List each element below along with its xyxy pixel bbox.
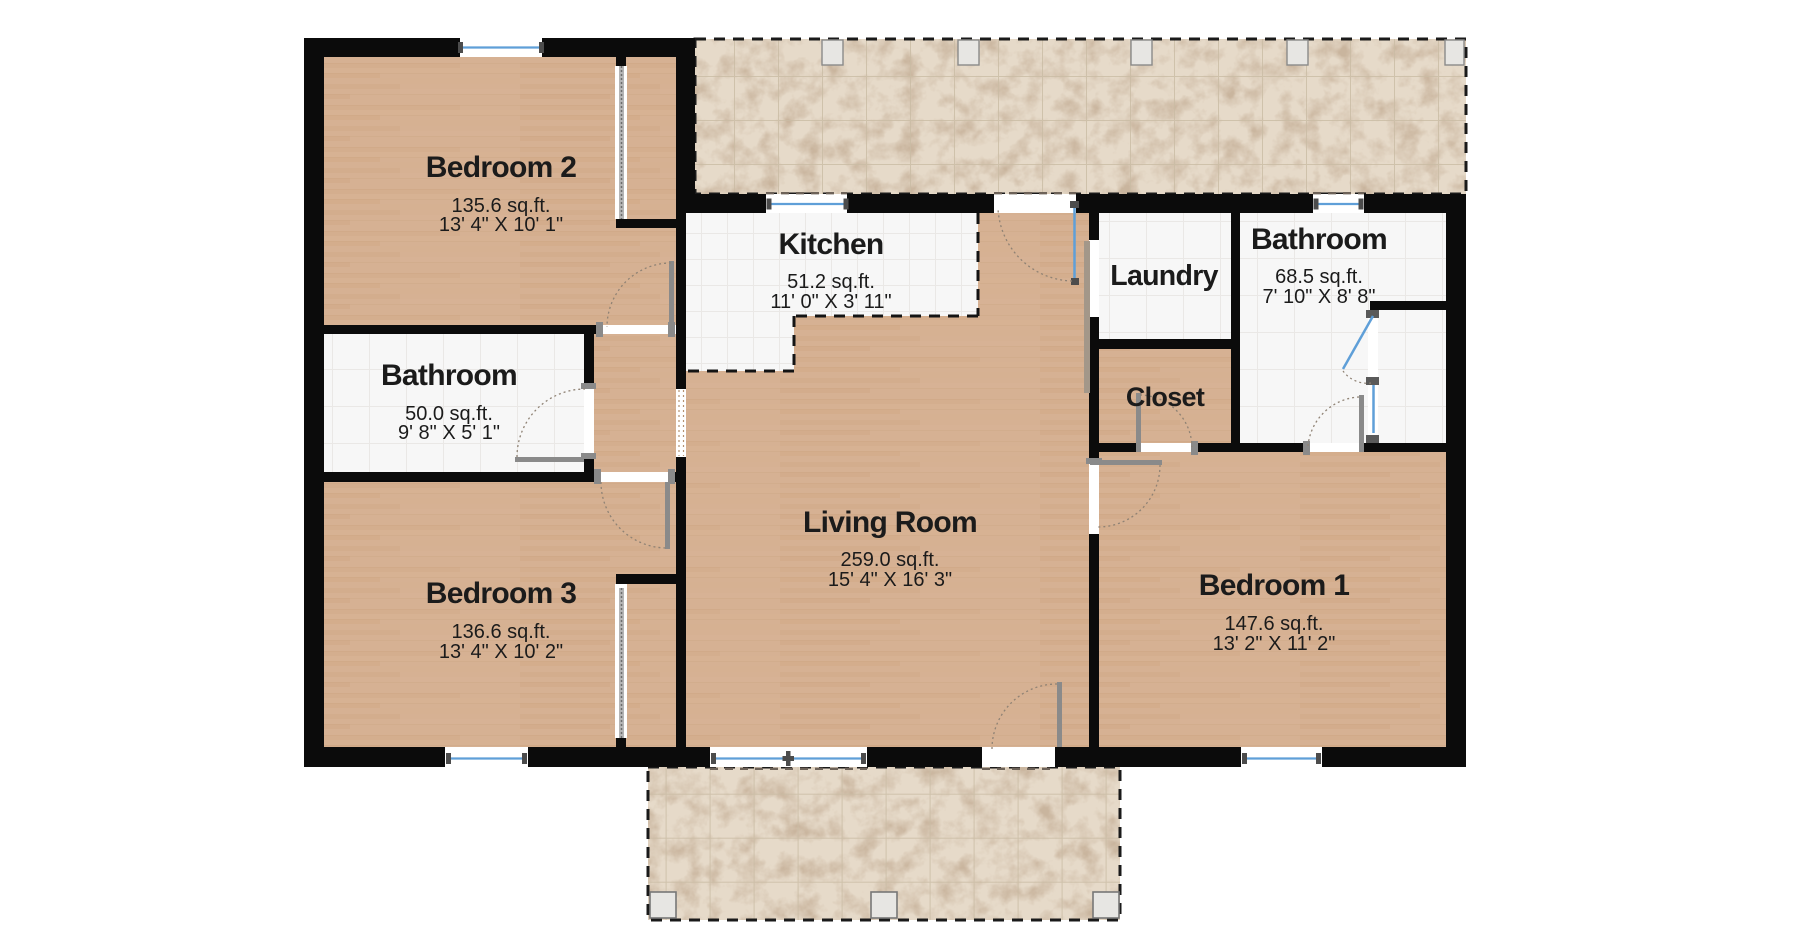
svg-text:15' 4" X 16' 3": 15' 4" X 16' 3" [828, 569, 952, 591]
svg-text:Bathroom: Bathroom [1251, 223, 1387, 256]
svg-text:259.0 sq.ft.: 259.0 sq.ft. [841, 549, 940, 571]
svg-text:Bathroom: Bathroom [381, 359, 517, 392]
svg-text:11' 0" X 3' 11": 11' 0" X 3' 11" [770, 291, 891, 313]
svg-text:Bedroom 2: Bedroom 2 [426, 151, 576, 184]
svg-text:Bedroom 3: Bedroom 3 [426, 577, 576, 610]
svg-text:136.6 sq.ft.: 136.6 sq.ft. [452, 621, 551, 643]
svg-text:Bedroom 1: Bedroom 1 [1199, 569, 1349, 602]
svg-text:147.6 sq.ft.: 147.6 sq.ft. [1225, 613, 1324, 635]
svg-text:13' 4" X 10' 1": 13' 4" X 10' 1" [439, 214, 563, 236]
svg-text:7' 10" X 8' 8": 7' 10" X 8' 8" [1262, 286, 1375, 308]
svg-text:Laundry: Laundry [1110, 260, 1218, 292]
svg-text:Living Room: Living Room [803, 506, 977, 539]
svg-text:13' 2" X 11' 2": 13' 2" X 11' 2" [1213, 633, 1336, 655]
svg-text:51.2 sq.ft.: 51.2 sq.ft. [787, 271, 875, 293]
svg-text:68.5 sq.ft.: 68.5 sq.ft. [1275, 266, 1363, 288]
svg-text:9' 8" X 5' 1": 9' 8" X 5' 1" [398, 422, 500, 444]
svg-text:Closet: Closet [1126, 382, 1205, 412]
svg-text:13' 4" X 10' 2": 13' 4" X 10' 2" [439, 641, 563, 663]
svg-text:Kitchen: Kitchen [778, 228, 883, 261]
